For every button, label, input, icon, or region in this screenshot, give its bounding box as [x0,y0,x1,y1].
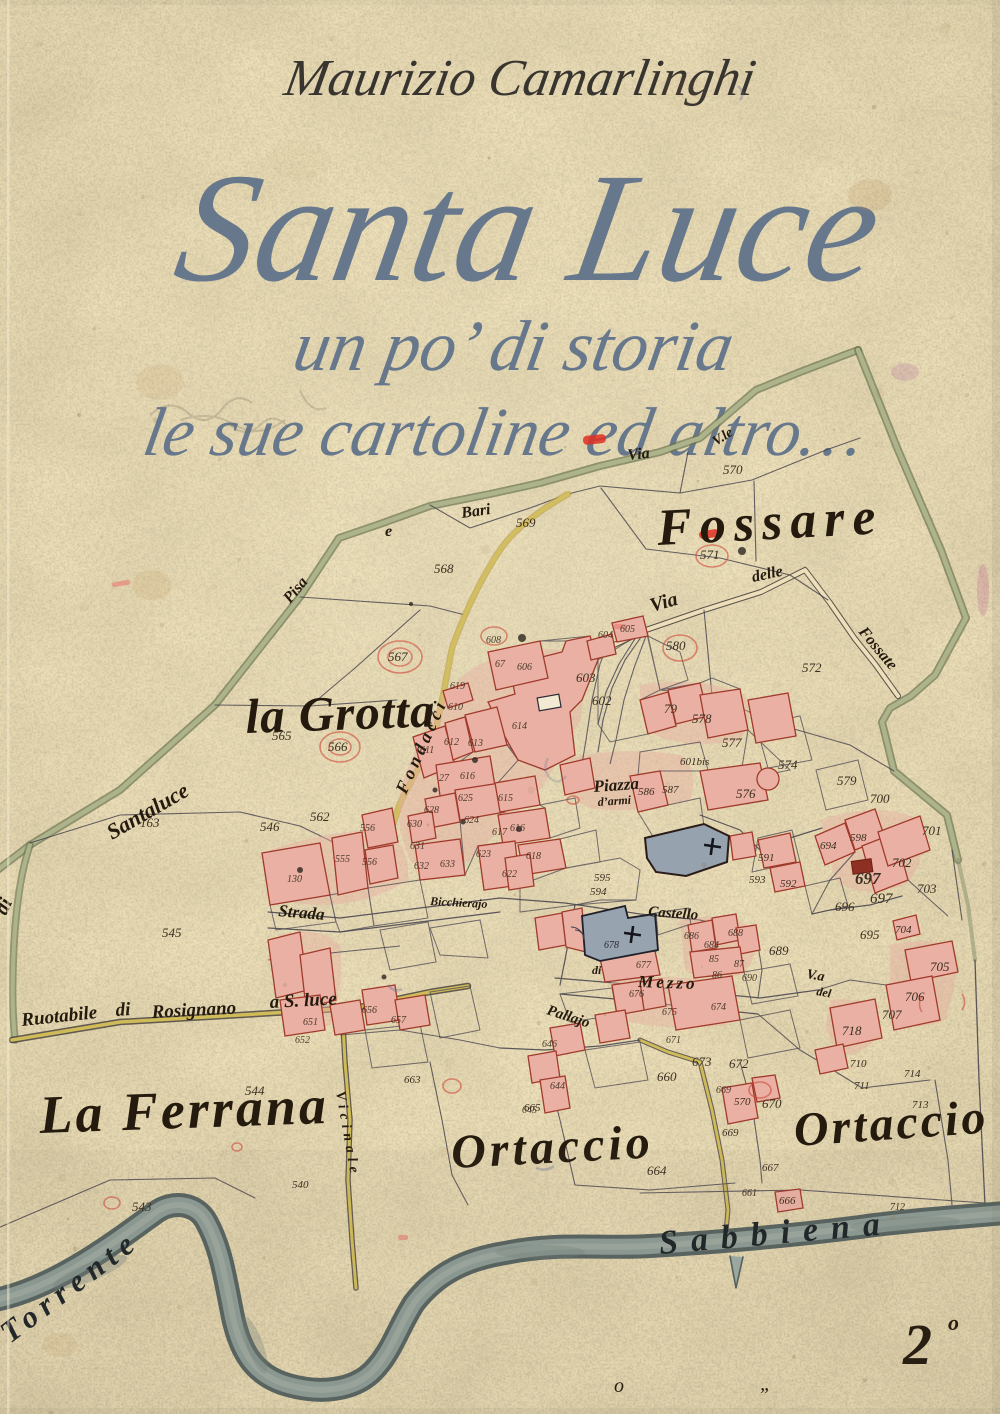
svg-text:562: 562 [310,809,330,824]
svg-text:663: 663 [404,1074,421,1086]
svg-text:704: 704 [895,924,912,936]
svg-text:130: 130 [287,874,302,885]
svg-text:163: 163 [140,815,160,830]
svg-text:674: 674 [711,1002,726,1013]
svg-text:570: 570 [723,462,743,477]
svg-text:544: 544 [245,1083,265,1098]
svg-text:677: 677 [636,960,652,971]
svg-text:86: 86 [712,970,722,981]
svg-text:646: 646 [542,1039,557,1050]
svg-text:684: 684 [704,940,719,951]
svg-text:700: 700 [870,791,890,806]
svg-text:652: 652 [295,1035,310,1046]
svg-text:710: 710 [850,1058,867,1070]
svg-text:608: 608 [486,635,501,646]
svg-text:707: 707 [882,1007,902,1022]
svg-text:615: 615 [498,793,513,804]
svg-text:713: 713 [912,1099,929,1111]
svg-text:633: 633 [440,859,455,870]
svg-text:632: 632 [414,861,429,872]
svg-text:660: 660 [657,1069,677,1084]
svg-text:669: 669 [716,1085,731,1096]
svg-text:555: 555 [335,854,350,865]
svg-text:571: 571 [700,547,720,562]
svg-text:689: 689 [769,943,789,958]
svg-text:614: 614 [512,721,527,732]
svg-text:556: 556 [362,857,377,868]
svg-text:657: 657 [391,1015,407,1026]
svg-text:Rosignano: Rosignano [150,998,236,1023]
svg-text:592: 592 [780,878,797,890]
svg-text:87: 87 [734,959,745,970]
svg-text:Fossare: Fossare [655,488,885,557]
svg-text:688: 688 [728,928,743,939]
svg-text:591: 591 [758,852,775,864]
svg-text:624: 624 [464,815,479,826]
svg-text:556: 556 [360,823,375,834]
svg-text:566: 566 [328,739,348,754]
svg-text:675: 675 [662,1007,677,1018]
svg-text:567: 567 [388,649,408,664]
svg-text:604: 604 [598,630,613,641]
svg-text:601bis: 601bis [680,756,709,768]
svg-text:697: 697 [855,869,882,888]
svg-text:Via: Via [627,445,651,464]
svg-text:598: 598 [850,832,867,844]
svg-text:d’armi: d’armi [597,793,632,809]
svg-text:678: 678 [604,940,619,951]
svg-text:670: 670 [762,1096,782,1111]
svg-text:606: 606 [517,662,532,673]
svg-text:Piazza: Piazza [592,774,640,796]
svg-text:Strada: Strada [278,901,326,924]
svg-text:705: 705 [930,959,950,974]
svg-text:616: 616 [460,771,475,782]
svg-text:617: 617 [492,827,508,838]
svg-text:671: 671 [666,1035,681,1046]
svg-text:644: 644 [550,1081,565,1092]
svg-text:612: 612 [444,737,459,748]
svg-text:706: 706 [905,989,925,1004]
svg-text:a S. luce: a S. luce [269,988,338,1013]
svg-text:603: 603 [576,670,596,685]
svg-text:568: 568 [434,561,454,576]
svg-text:580: 580 [666,638,686,653]
svg-text:569: 569 [516,515,536,530]
svg-text:703: 703 [917,881,937,896]
svg-text:595: 595 [594,872,611,884]
svg-text:67: 67 [495,659,506,670]
svg-text:694: 694 [820,840,837,852]
svg-text:di: di [592,963,602,977]
svg-text:686: 686 [684,931,699,942]
svg-text:672: 672 [729,1056,749,1071]
svg-text:579: 579 [837,773,857,788]
svg-text:676: 676 [629,989,644,1000]
svg-text:618: 618 [526,851,541,862]
svg-text:di: di [115,999,132,1021]
svg-text:593: 593 [749,874,766,886]
svg-text:622: 622 [502,869,517,880]
svg-text:572: 572 [802,660,822,675]
svg-text:577: 577 [722,735,742,750]
svg-text:718: 718 [842,1023,862,1038]
svg-text:578: 578 [692,711,712,726]
svg-text:656: 656 [362,1005,377,1016]
svg-text:628: 628 [424,805,439,816]
svg-text:611: 611 [420,745,434,756]
svg-text:616: 616 [510,823,525,834]
svg-text:690: 690 [742,973,757,984]
svg-text:La Ferrana: La Ferrana [37,1075,329,1145]
svg-text:e: e [385,523,392,540]
svg-text:695: 695 [860,927,880,942]
svg-text:697: 697 [870,891,894,907]
svg-text:673: 673 [692,1054,712,1069]
svg-text:714: 714 [904,1068,921,1080]
svg-text:613: 613 [468,738,483,749]
svg-text:610: 610 [448,702,463,713]
svg-text:570: 570 [734,1096,751,1108]
svg-text:594: 594 [590,886,607,898]
svg-text:565: 565 [272,728,292,743]
svg-text:545: 545 [162,925,182,940]
svg-text:576: 576 [736,786,756,801]
svg-text:651: 651 [303,1017,318,1028]
svg-text:602: 602 [592,693,612,708]
svg-text:587: 587 [662,784,679,796]
svg-text:605: 605 [620,624,635,635]
svg-text:702: 702 [892,855,912,870]
svg-text:85: 85 [709,954,719,965]
svg-text:696: 696 [835,899,855,914]
svg-text:711: 711 [854,1080,870,1092]
svg-text:V.a: V.a [805,967,825,985]
svg-text:645: 645 [522,1105,537,1116]
svg-text:586: 586 [638,786,655,798]
svg-text:27: 27 [439,773,450,784]
svg-text:631: 631 [410,841,425,852]
svg-text:630: 630 [407,819,422,830]
svg-text:79: 79 [664,701,678,716]
svg-text:546: 546 [260,819,280,834]
svg-text:619: 619 [450,681,465,692]
svg-text:669: 669 [722,1127,739,1139]
svg-text:574: 574 [778,757,798,772]
svg-text:701: 701 [922,823,942,838]
svg-text:Mezzo: Mezzo [637,972,698,993]
svg-text:625: 625 [458,793,473,804]
svg-text:623: 623 [476,849,491,860]
